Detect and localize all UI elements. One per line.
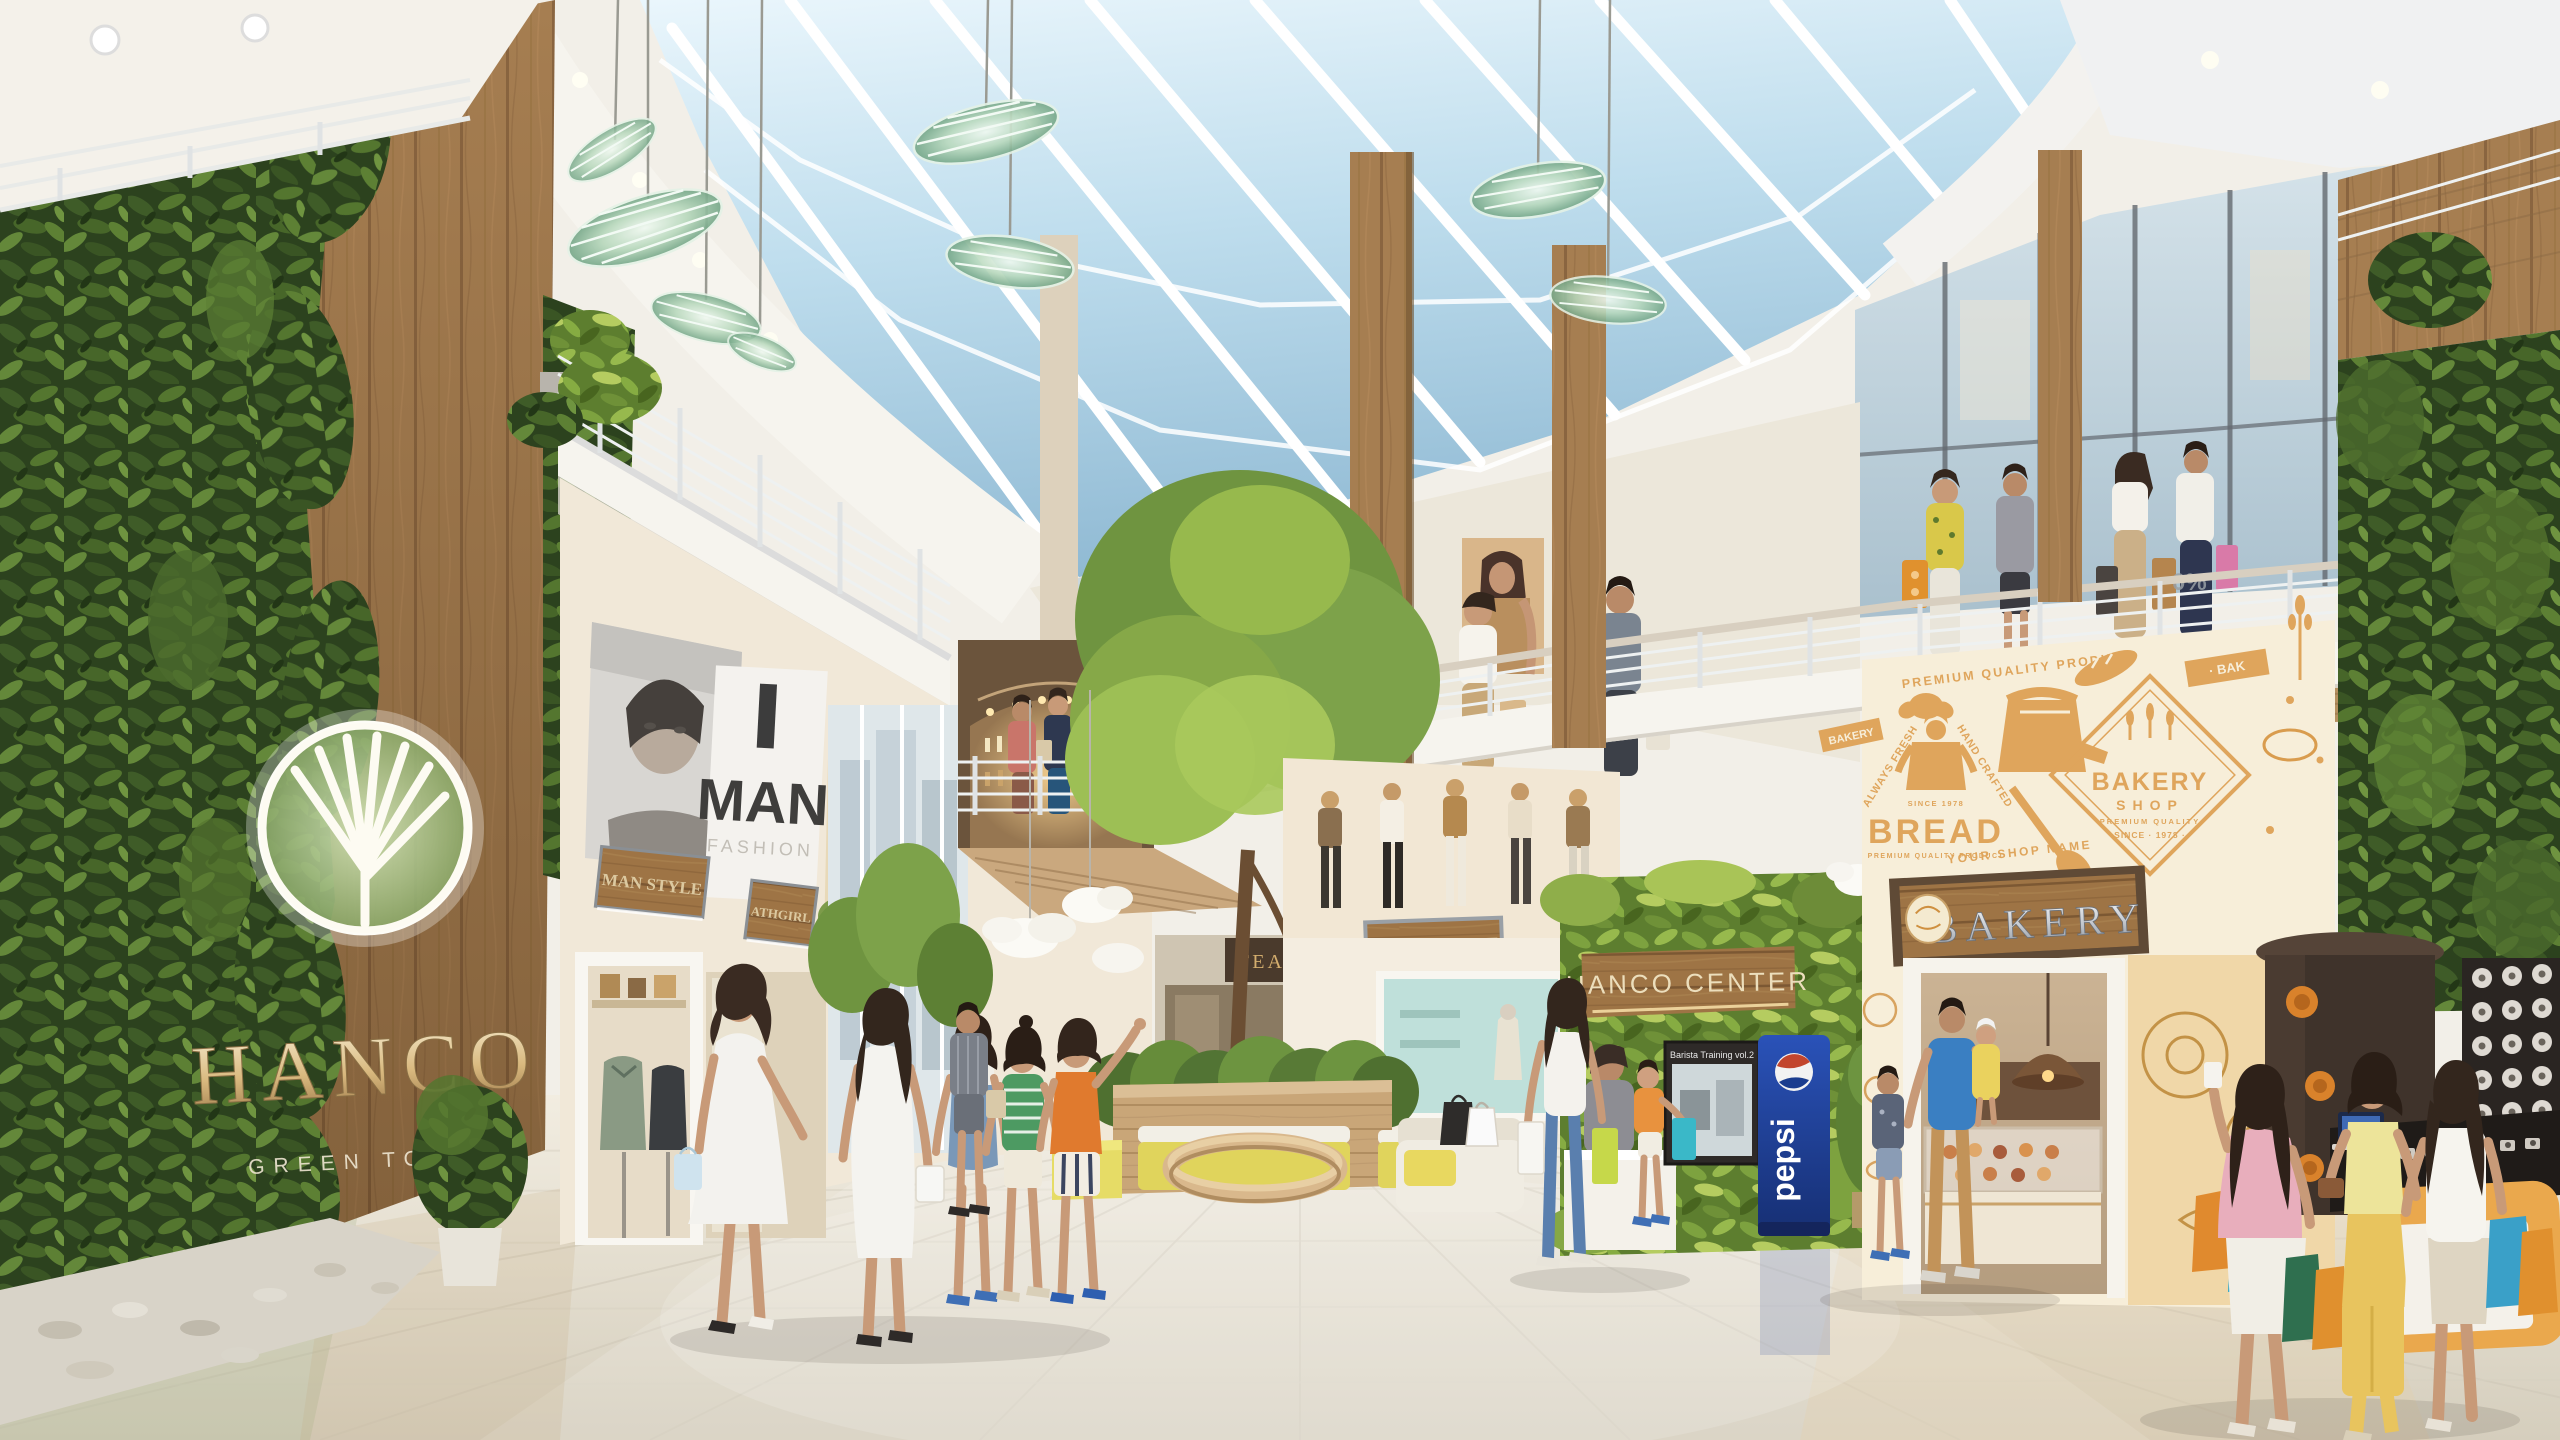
- screen-caption-text: Barista Training vol.2: [1670, 1050, 1754, 1060]
- balcony-plant: [2368, 232, 2492, 328]
- mall-atrium-rendering: 0%: [0, 0, 2560, 1440]
- pepsi-cooler: pepsi: [1758, 1035, 1830, 1236]
- shop-badge-quality: PREMIUM QUALITY: [2100, 817, 2200, 826]
- hanco-logo-emblem: [253, 716, 477, 940]
- bakery-sign: BAKERY: [1889, 865, 2149, 966]
- hanco-center-sign-text: HANCO CENTER: [1566, 966, 1811, 1000]
- scene-canvas: 0%: [0, 0, 2560, 1440]
- bread-since: SINCE 1978: [1908, 799, 1965, 808]
- shop-badge-title: BAKERY: [2092, 768, 2209, 796]
- hanco-center-sign: HANCO CENTER: [1565, 946, 1810, 1018]
- man-poster-title: MAN: [695, 767, 830, 839]
- shop-sign-man-style: MAN STYLE: [595, 847, 709, 920]
- mannequin-jacket-dark: [649, 1065, 687, 1150]
- pastry-display-case: [1925, 1128, 2101, 1264]
- wood-pillar: [2038, 150, 2082, 602]
- shop-badge-since: SINCE · 1978 ·: [2114, 830, 2186, 840]
- shop-sign-athgirl: ATHGIRL: [745, 880, 818, 948]
- shop-badge-sub: SHOP: [2116, 797, 2184, 813]
- bread-title: BREAD: [1868, 813, 2004, 851]
- mannequin-jacket-green: [600, 1056, 646, 1150]
- column: [1040, 235, 1078, 650]
- pepsi-logo-text: pepsi: [1765, 1118, 1801, 1202]
